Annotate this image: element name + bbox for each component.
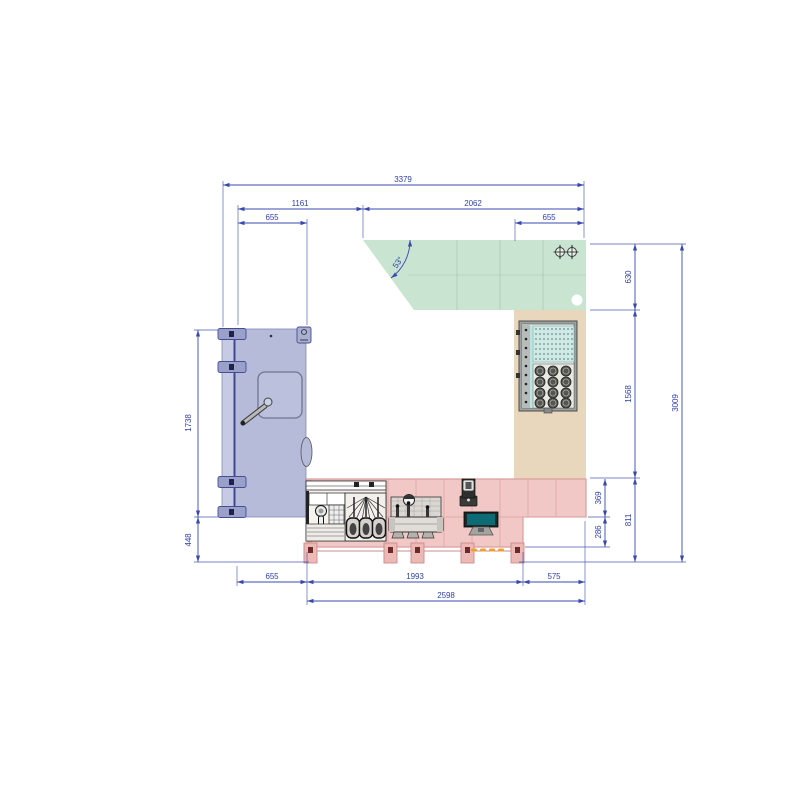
dim-label-right-upper: 630	[624, 270, 633, 284]
dim-label-top-right-sub: 655	[542, 213, 556, 222]
water-boiler	[389, 495, 443, 539]
dim-label-counter-upper: 369	[594, 491, 603, 505]
coldroom-door	[218, 327, 312, 518]
dim-label-counter-span: 1993	[406, 572, 424, 581]
dim-label-bottom-right-span: 575	[547, 572, 561, 581]
dim-label-right-lower: 811	[624, 513, 633, 526]
dim-label-overall-width: 3379	[394, 175, 412, 184]
dim-label-bottom-left-offset: 655	[265, 572, 279, 581]
door-frame	[222, 329, 234, 517]
range-unit	[516, 321, 577, 413]
door-latch-bracket	[297, 327, 311, 343]
dim-label-right-span: 2062	[464, 199, 482, 208]
dim-label-overall-height: 3009	[671, 394, 680, 412]
door-seal-bump	[301, 438, 312, 467]
coffee-grinder	[460, 479, 477, 506]
pos-screen	[467, 514, 495, 525]
dim-label-counter-lower: 286	[594, 525, 603, 539]
espresso-machine	[306, 481, 386, 541]
milk-jugs	[347, 518, 386, 538]
dim-label-counter-overall: 2598	[437, 591, 455, 600]
range-griddle-section	[533, 326, 574, 362]
keypad-panel	[329, 505, 344, 524]
floor-plan-drawing: 3379 1161 2062 655 655 1738 448 630 1568…	[0, 0, 800, 800]
range-burners	[533, 364, 574, 408]
door-window	[258, 372, 302, 418]
column-marker	[572, 295, 583, 306]
dim-label-below-door: 448	[184, 533, 193, 547]
dim-label-top-left-sub: 655	[265, 213, 279, 222]
dim-label-left-span: 1161	[292, 199, 309, 208]
zone-green-counter	[363, 240, 586, 310]
range-knobs	[525, 329, 528, 404]
drawing-canvas: 3379 1161 2062 655 655 1738 448 630 1568…	[0, 0, 800, 800]
dim-label-right-middle: 1568	[624, 385, 633, 403]
dim-label-door-height: 1738	[184, 414, 193, 432]
